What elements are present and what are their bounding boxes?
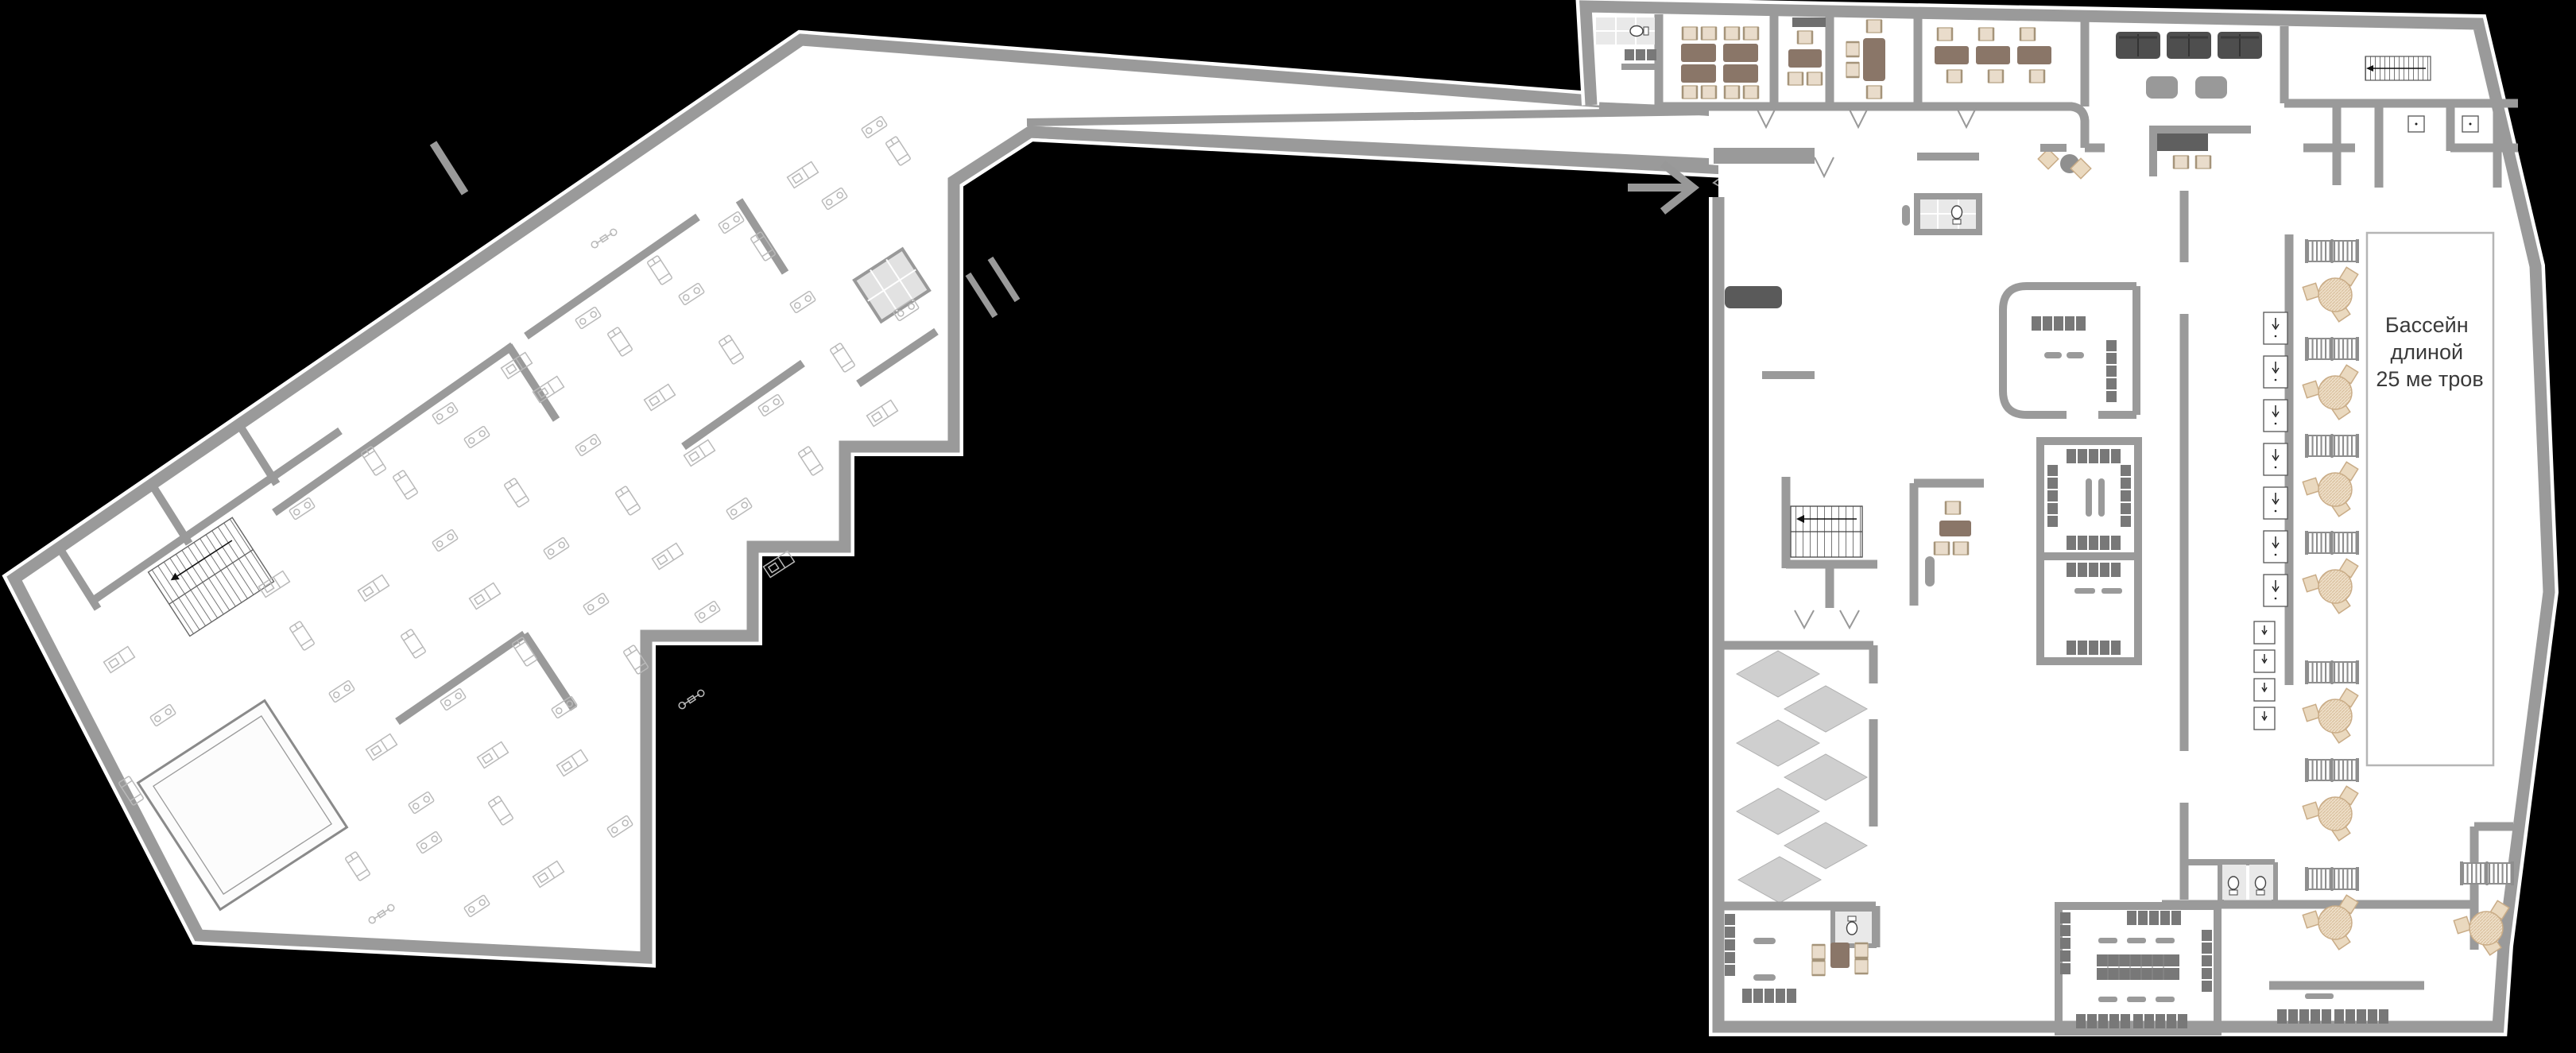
sofa xyxy=(2218,32,2262,59)
lockers-top-wc xyxy=(1625,49,1656,60)
bench xyxy=(1902,205,1910,226)
reception-desk xyxy=(2157,134,2208,151)
ottoman xyxy=(2195,76,2227,99)
lobby-sofa xyxy=(1725,286,1782,308)
sofa xyxy=(2167,32,2211,59)
pool-label: Бассейн длиной 25 ме тров xyxy=(2376,313,2483,391)
sofa xyxy=(2116,32,2160,59)
ottoman xyxy=(2146,76,2178,99)
left-wing-gym xyxy=(14,40,1725,958)
floor-plan-canvas: Бассейн длиной 25 ме тров xyxy=(0,0,2576,1053)
right-wing-spa: Бассейн длиной 25 ме тров xyxy=(1586,6,2549,1032)
toilet-room-lobby xyxy=(1917,196,1979,232)
dining-room-d xyxy=(1935,28,2051,83)
